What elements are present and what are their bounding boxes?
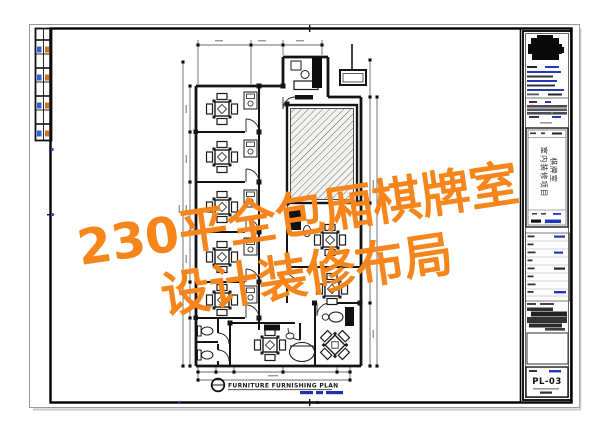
plan-caption: FURNITURE FURNISHING PLAN	[212, 379, 343, 395]
hatched-stair-area	[287, 105, 357, 203]
corner-toilet	[322, 307, 354, 326]
project-name-line2: 室内装修项目	[540, 147, 550, 198]
sign-board-icon	[340, 44, 366, 85]
revision-ladder-strip	[36, 29, 52, 141]
caption-title: FURNITURE FURNISHING PLAN	[228, 383, 338, 390]
drawing-sheet: FURNITURE FURNISHING PLAN	[0, 0, 600, 431]
title-block: 棋牌室 室内装修项目	[523, 31, 571, 400]
project-name-line1: 棋牌室	[549, 158, 559, 184]
reception-desk	[291, 57, 322, 100]
cad-floor-plan-canvas: FURNITURE FURNISHING PLAN	[0, 0, 600, 431]
company-logo-blob	[528, 35, 564, 60]
sheet-number: PL-03	[532, 377, 562, 387]
